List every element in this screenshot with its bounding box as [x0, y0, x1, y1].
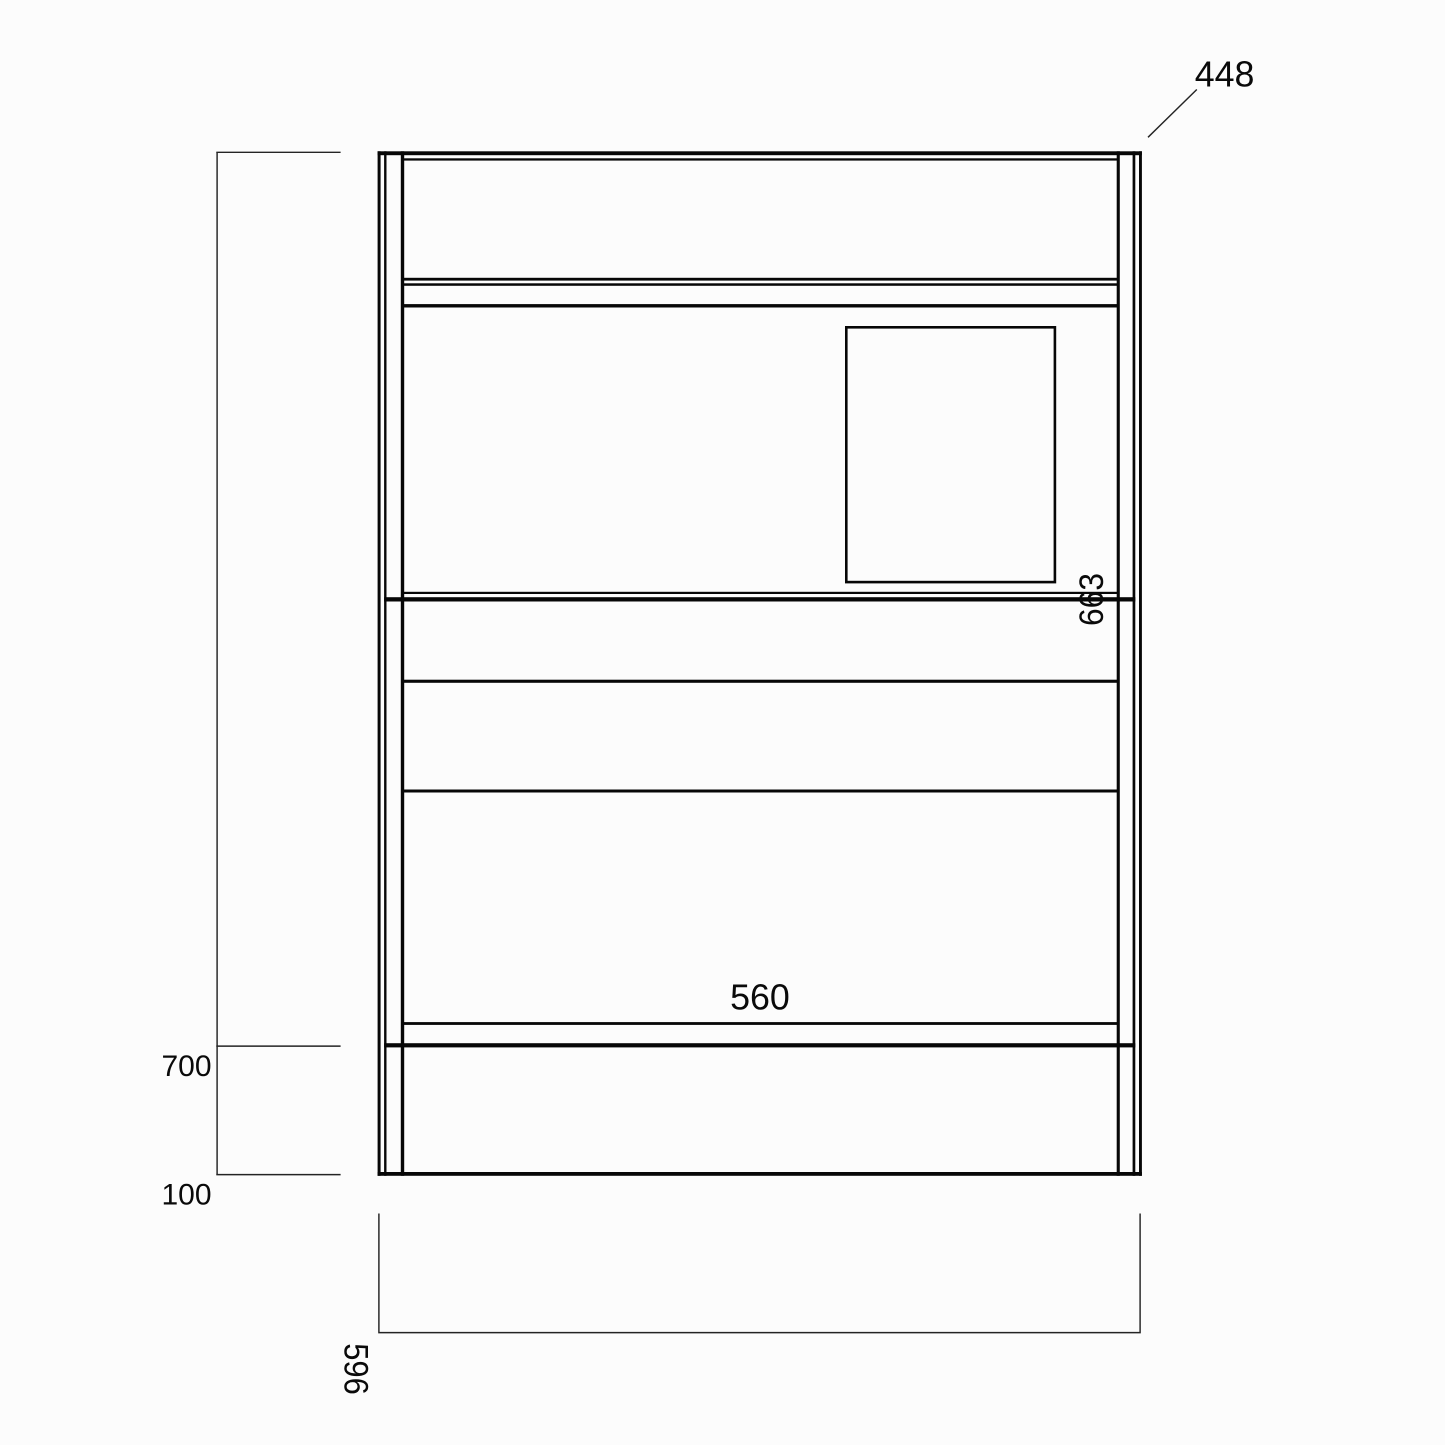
svg-text:448: 448: [1195, 55, 1255, 95]
svg-text:700: 700: [162, 1050, 212, 1083]
svg-text:560: 560: [730, 977, 790, 1017]
svg-text:663: 663: [1073, 573, 1111, 626]
svg-text:100: 100: [162, 1178, 212, 1211]
svg-text:596: 596: [337, 1343, 375, 1395]
